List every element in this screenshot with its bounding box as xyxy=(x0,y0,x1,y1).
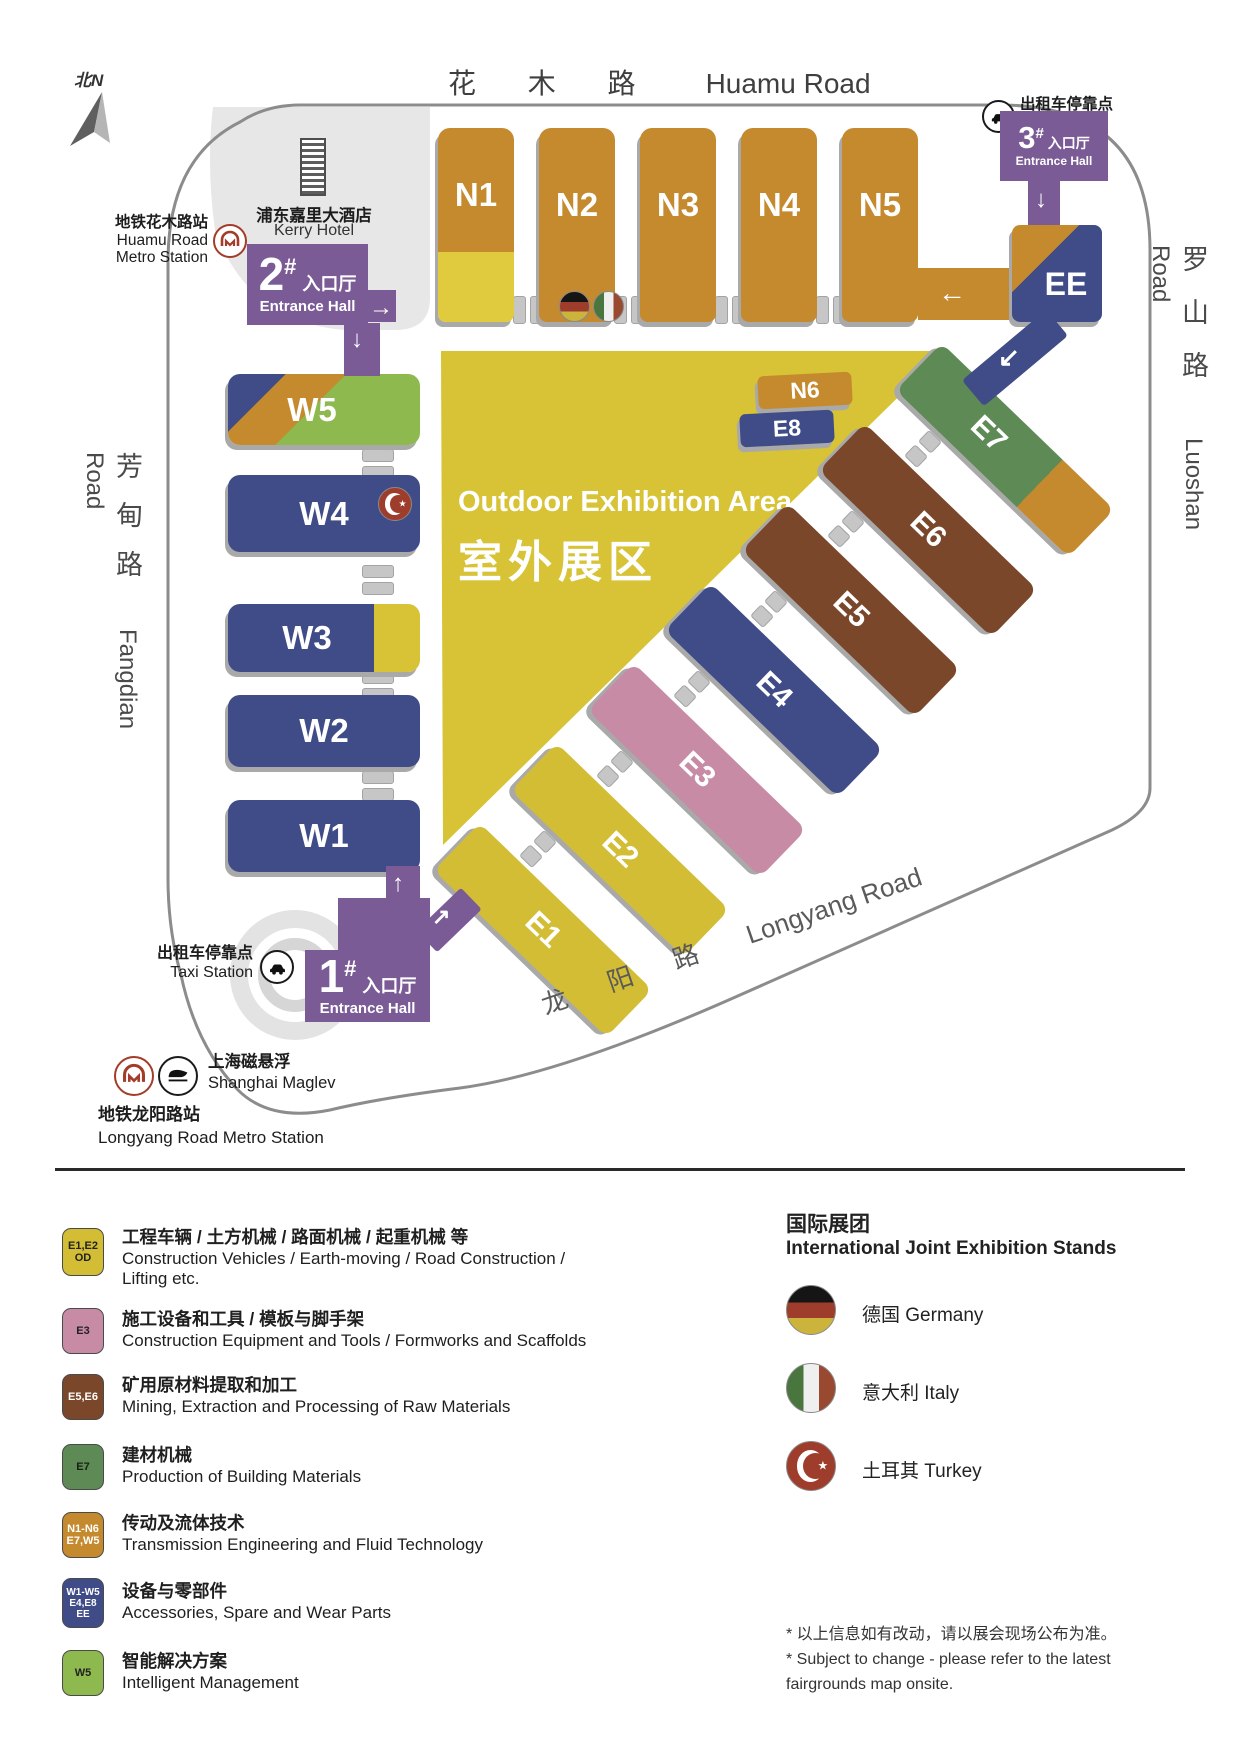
turkey-star: ★ xyxy=(818,1459,829,1473)
hall-e4-label: E4 xyxy=(749,665,799,715)
hall-ee: EE xyxy=(1012,225,1102,322)
footnote-line1: * 以上信息如有改动，请以展会现场公布为准。 xyxy=(786,1622,1117,1647)
huamu-metro-cn: 地铁花木路站 xyxy=(80,214,208,232)
intl-title-cn: 国际展团 xyxy=(786,1208,870,1238)
turkey-star: ★ xyxy=(398,498,406,509)
footnote: * 以上信息如有改动，请以展会现场公布为准。 * Subject to chan… xyxy=(786,1622,1117,1697)
maglev-label: 上海磁悬浮 Shanghai Maglev xyxy=(208,1052,336,1094)
entrance-1-cn: 入口厅 xyxy=(362,972,416,998)
metro-icon xyxy=(213,224,247,258)
entrance-hall-2: 2# 入口厅 Entrance Hall xyxy=(247,244,368,325)
metro-logo-glyph xyxy=(121,1063,147,1089)
taxi-bottom-label: 出租车停靠点 Taxi Station xyxy=(110,944,253,982)
train-glyph xyxy=(164,1062,192,1090)
arrow-upright-icon: ↗ xyxy=(432,906,450,928)
longyang-metro-cn: 地铁龙阳路站 xyxy=(98,1103,324,1126)
hall-n6-label: N6 xyxy=(790,376,821,405)
hall-w5-label: W5 xyxy=(287,391,337,429)
section-divider xyxy=(55,1168,1185,1171)
metro-logo-glyph xyxy=(219,230,241,252)
hall-w4-label: W4 xyxy=(299,495,349,533)
outdoor-area-label-cn: 室外展区 xyxy=(458,526,658,590)
hall-e7-label: E7 xyxy=(963,409,1013,459)
arrow-up-icon: ↑ xyxy=(392,872,404,896)
entrance-2-en: Entrance Hall xyxy=(260,298,356,315)
intl-entry-germany: 德国 Germany xyxy=(862,1300,983,1327)
entrance-2-number: 2 xyxy=(259,254,285,295)
hall-n2-label: N2 xyxy=(556,186,598,224)
legend-badge-n1n6: N1-N6E7,W5 xyxy=(62,1512,104,1558)
road-fangdian-cn: 芳甸路 xyxy=(112,452,142,599)
hall-e8-label: E8 xyxy=(772,414,802,442)
entrance-1-number: 1 xyxy=(319,956,345,997)
taxi-bottom-cn: 出租车停靠点 xyxy=(110,944,253,963)
longyang-metro-en: Longyang Road Metro Station xyxy=(98,1126,324,1149)
kerry-hotel-label-en: Kerry Hotel xyxy=(228,222,400,240)
hall-w3-label: W3 xyxy=(282,619,332,657)
longyang-metro-label: 地铁龙阳路站 Longyang Road Metro Station xyxy=(98,1103,324,1149)
hall-e1-label: E1 xyxy=(518,905,568,955)
legend-text: 矿用原材料提取和加工 Mining, Extraction and Proces… xyxy=(122,1372,742,1417)
hall-n4-label: N4 xyxy=(758,186,800,224)
hall-e5-label: E5 xyxy=(826,585,876,635)
entrance-hall-1: 1# 入口厅 Entrance Hall xyxy=(305,950,430,1022)
arrow-down-icon: ↓ xyxy=(1035,188,1047,212)
hall-e8: E8 xyxy=(739,410,835,448)
entrance-1-block xyxy=(338,898,430,954)
legend-badge-w1w5: W1-W5E4,E8EE xyxy=(62,1578,104,1628)
hall-w1: W1 xyxy=(228,800,420,872)
germany-flag-icon xyxy=(786,1285,836,1335)
taxi-bottom-icon xyxy=(260,950,294,984)
road-huamu-en: Huamu Road xyxy=(706,68,871,100)
arrow-left-icon: ← xyxy=(938,279,966,307)
huamu-metro-en1: Huamu Road xyxy=(80,232,208,250)
hall-n6: N6 xyxy=(757,372,853,410)
intl-entry-turkey: 土耳其 Turkey xyxy=(862,1456,982,1483)
connector xyxy=(362,771,394,801)
intl-entry-italy: 意大利 Italy xyxy=(862,1378,959,1405)
arrow-right-icon: → xyxy=(369,296,393,320)
legend-badge-e5e6: E5,E6 xyxy=(62,1374,104,1420)
huamu-metro-en2: Metro Station xyxy=(80,249,208,267)
legend-text: 工程车辆 / 土方机械 / 路面机械 / 起重机械 等 Construction… xyxy=(122,1224,742,1289)
maglev-cn: 上海磁悬浮 xyxy=(208,1052,336,1073)
italy-flag-icon xyxy=(593,291,624,322)
hall-e6-label: E6 xyxy=(903,505,953,555)
legend-text: 智能解决方案 Intelligent Management xyxy=(122,1648,742,1693)
hall-w3: W3 xyxy=(228,604,420,672)
taxi-bottom-en: Taxi Station xyxy=(110,963,253,982)
entrance-1-hash: # xyxy=(344,956,356,982)
maglev-en: Shanghai Maglev xyxy=(208,1073,336,1094)
legend-text: 施工设备和工具 / 模板与脚手架 Construction Equipment … xyxy=(122,1306,742,1351)
entrance-3-number: 3 xyxy=(1018,124,1035,152)
compass-label: 北N xyxy=(74,66,103,91)
entrance-hall-3: 3# 入口厅 Entrance Hall xyxy=(1000,111,1108,181)
hall-e3-label: E3 xyxy=(672,745,722,795)
footnote-line2: * Subject to change - please refer to th… xyxy=(786,1647,1117,1672)
legend-badge-e7: E7 xyxy=(62,1444,104,1490)
hall-n3: N3 xyxy=(640,128,716,322)
hall-w2: W2 xyxy=(228,695,420,767)
hall-w2-label: W2 xyxy=(299,712,349,750)
road-label-luoshan: 罗山路 Luoshan Road xyxy=(1146,245,1213,585)
kerry-hotel-icon xyxy=(300,138,326,196)
entrance-2-cn: 入口厅 xyxy=(302,270,356,296)
hall-n1-label: N1 xyxy=(455,176,497,214)
outdoor-area-label-en: Outdoor Exhibition Area xyxy=(458,486,792,519)
ee-bridge xyxy=(918,268,1014,320)
entrance-2-hash: # xyxy=(284,254,296,280)
connector xyxy=(362,565,394,595)
huamu-metro-label: 地铁花木路站 Huamu Road Metro Station xyxy=(80,214,208,267)
entrance-3-hash: # xyxy=(1035,125,1043,142)
legend-badge-e1e2od: E1,E2OD xyxy=(62,1228,104,1276)
road-huamu-cn: 花 木 路 xyxy=(448,62,658,102)
hall-n3-label: N3 xyxy=(657,186,699,224)
entrance-3-cn: 入口厅 xyxy=(1048,133,1090,153)
hall-n5-label: N5 xyxy=(859,186,901,224)
turkey-flag-icon: ★ xyxy=(786,1441,836,1491)
legend-text: 建材机械 Production of Building Materials xyxy=(122,1442,742,1487)
italy-flag-icon xyxy=(786,1363,836,1413)
road-label-fangdian: 芳甸路 Fangdian Road xyxy=(80,452,147,792)
hall-n4: N4 xyxy=(741,128,817,322)
hall-w5: W5 xyxy=(228,374,420,445)
legend-badge-w5: W5 xyxy=(62,1650,104,1696)
hall-n5: N5 xyxy=(842,128,918,322)
legend-badge-e3: E3 xyxy=(62,1308,104,1354)
legend-text: 设备与零部件 Accessories, Spare and Wear Parts xyxy=(122,1578,742,1623)
entrance-1-en: Entrance Hall xyxy=(320,1000,416,1017)
arrow-down-icon: ↓ xyxy=(351,328,363,352)
fairgrounds-map-page: 北N 花 木 路 Huamu Road 罗山路 Luoshan Road 芳甸路… xyxy=(0,0,1240,1754)
road-luoshan-cn: 罗山路 xyxy=(1178,245,1208,404)
legend-text: 传动及流体技术 Transmission Engineering and Flu… xyxy=(122,1510,742,1555)
taxi-glyph xyxy=(266,956,289,979)
hall-ee-label: EE xyxy=(1045,266,1088,303)
entrance-3-en: Entrance Hall xyxy=(1016,154,1093,168)
hall-w1-label: W1 xyxy=(299,817,349,855)
turkey-flag-icon: ★ xyxy=(378,487,412,521)
road-label-huamu: 花 木 路 Huamu Road xyxy=(448,62,871,102)
germany-flag-icon xyxy=(559,291,590,322)
arrow-downleft-icon: ↙ xyxy=(998,344,1020,370)
metro-icon xyxy=(114,1056,154,1096)
hall-n1: N1 xyxy=(438,128,514,322)
maglev-train-icon xyxy=(158,1056,198,1096)
intl-title-en: International Joint Exhibition Stands xyxy=(786,1238,1116,1260)
hall-e2-label: E2 xyxy=(595,825,645,875)
footnote-line3: fairgrounds map onsite. xyxy=(786,1672,1117,1697)
